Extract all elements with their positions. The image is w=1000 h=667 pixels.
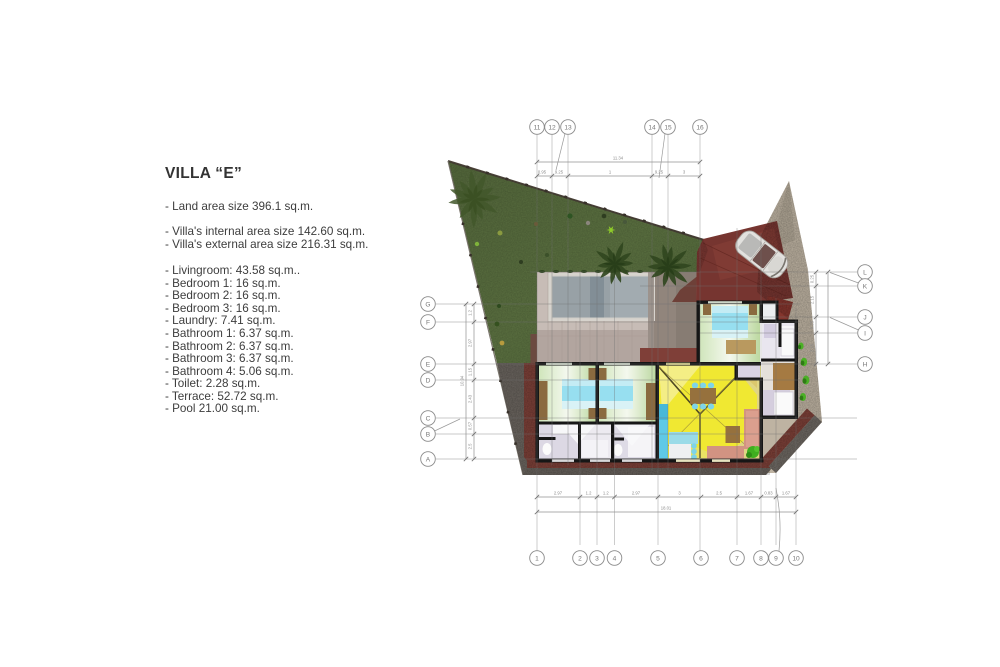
svg-text:A: A <box>426 456 431 463</box>
svg-text:0.95: 0.95 <box>538 170 547 175</box>
svg-text:11.34: 11.34 <box>613 156 624 161</box>
svg-text:11: 11 <box>534 124 541 131</box>
svg-text:J: J <box>863 314 866 321</box>
svg-text:9.25: 9.25 <box>555 170 564 175</box>
svg-text:F: F <box>426 319 430 326</box>
svg-text:2.97: 2.97 <box>554 491 563 496</box>
svg-text:1.67: 1.67 <box>745 491 754 496</box>
svg-text:L: L <box>863 269 867 276</box>
svg-text:8: 8 <box>759 555 763 562</box>
svg-text:0.25: 0.25 <box>810 274 815 283</box>
svg-text:1.2: 1.2 <box>586 491 592 496</box>
svg-text:1.15: 1.15 <box>468 367 473 376</box>
svg-text:3: 3 <box>595 555 599 562</box>
svg-text:7: 7 <box>735 555 739 562</box>
svg-text:3: 3 <box>678 491 681 496</box>
svg-text:2.97: 2.97 <box>632 491 641 496</box>
svg-text:0.83: 0.83 <box>764 491 773 496</box>
svg-text:6: 6 <box>699 555 703 562</box>
svg-text:16: 16 <box>696 124 704 131</box>
svg-text:C: C <box>426 415 431 422</box>
svg-text:1.2: 1.2 <box>468 309 473 315</box>
svg-text:E: E <box>426 361 431 368</box>
svg-text:K: K <box>863 283 868 290</box>
svg-text:0.57: 0.57 <box>468 421 473 430</box>
svg-text:H: H <box>863 361 868 368</box>
svg-text:2.15: 2.15 <box>810 295 815 304</box>
svg-text:9: 9 <box>774 555 778 562</box>
svg-text:18.01: 18.01 <box>661 506 672 511</box>
svg-text:1.67: 1.67 <box>782 491 791 496</box>
svg-text:5: 5 <box>656 555 660 562</box>
svg-text:14: 14 <box>648 124 656 131</box>
svg-text:2.97: 2.97 <box>468 338 473 347</box>
svg-text:13: 13 <box>564 124 572 131</box>
svg-text:1: 1 <box>535 555 539 562</box>
svg-text:2: 2 <box>578 555 582 562</box>
svg-text:1.2: 1.2 <box>603 491 609 496</box>
svg-text:D: D <box>426 377 431 384</box>
svg-text:3: 3 <box>683 170 686 175</box>
svg-text:10: 10 <box>792 555 800 562</box>
svg-text:10.94: 10.94 <box>460 375 465 386</box>
svg-text:12: 12 <box>548 124 556 131</box>
svg-text:2.15: 2.15 <box>810 343 815 352</box>
svg-text:2.5: 2.5 <box>716 491 722 496</box>
svg-text:15: 15 <box>664 124 672 131</box>
svg-text:2.5: 2.5 <box>468 443 473 449</box>
svg-text:I: I <box>864 330 866 337</box>
svg-text:0.25: 0.25 <box>810 320 815 329</box>
svg-text:2.43: 2.43 <box>468 394 473 403</box>
svg-text:B: B <box>426 431 431 438</box>
svg-text:G: G <box>425 301 430 308</box>
svg-text:4: 4 <box>613 555 617 562</box>
svg-text:1: 1 <box>609 170 612 175</box>
